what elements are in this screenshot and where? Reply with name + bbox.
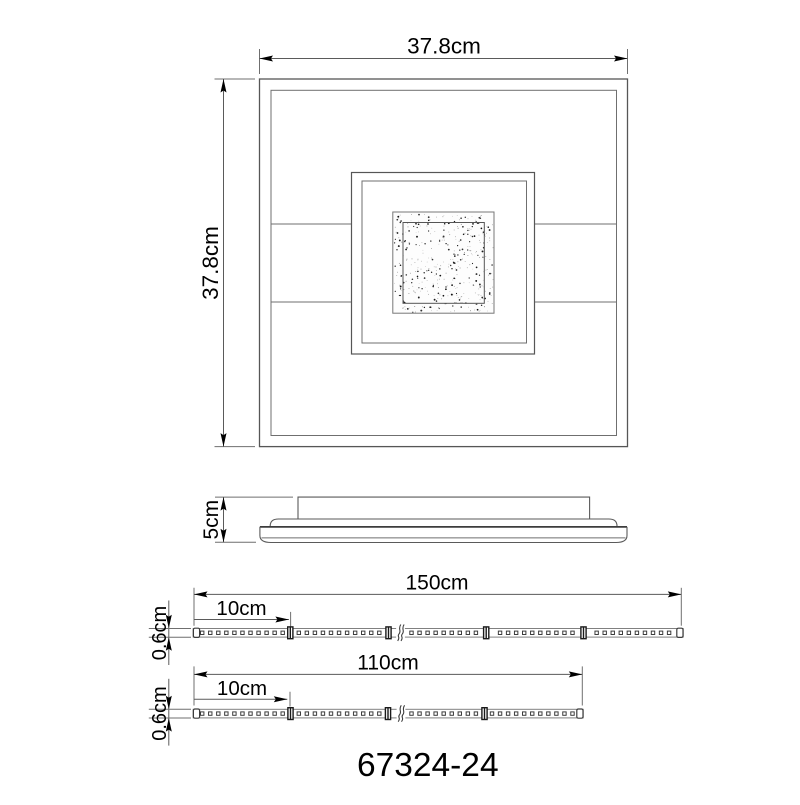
svg-text:110cm: 110cm <box>357 652 418 675</box>
svg-text:37.8cm: 37.8cm <box>198 226 223 300</box>
svg-text:5cm: 5cm <box>200 500 223 540</box>
svg-text:150cm: 150cm <box>405 572 468 595</box>
svg-text:10cm: 10cm <box>216 597 266 620</box>
svg-text:0.6cm: 0.6cm <box>149 686 171 740</box>
svg-text:10cm: 10cm <box>217 677 267 700</box>
svg-text:0.6cm: 0.6cm <box>149 606 171 660</box>
svg-text:67324-24: 67324-24 <box>357 747 499 784</box>
svg-text:37.8cm: 37.8cm <box>407 34 481 59</box>
